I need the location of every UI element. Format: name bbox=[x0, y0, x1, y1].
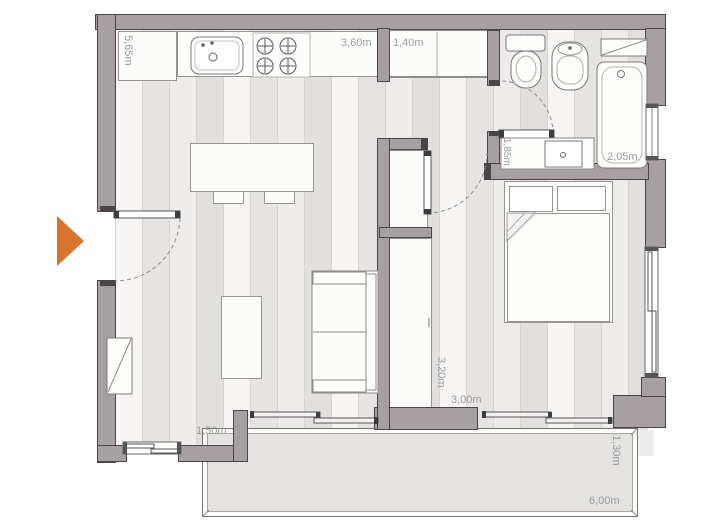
coffee-table bbox=[221, 296, 262, 379]
dim-kitchen-side: 5,65m bbox=[121, 35, 134, 81]
wall-kitchen-stub bbox=[377, 28, 390, 82]
dim-kitchen-counter: 3,60m bbox=[341, 37, 372, 50]
bedroom-closet bbox=[389, 150, 428, 228]
dim-bathtub: 2,05m bbox=[607, 151, 638, 164]
wall-closet-stub bbox=[379, 227, 432, 238]
dim-bedroom-width: 3,00m bbox=[451, 394, 482, 407]
kitchen-island bbox=[190, 143, 314, 192]
bed-blanket bbox=[507, 213, 610, 322]
wall-cap bbox=[489, 131, 500, 136]
balcony bbox=[202, 428, 638, 517]
wall-bottom-right-upper bbox=[641, 377, 666, 397]
dim-bath-vanity: 1,85m bbox=[500, 138, 513, 172]
wall-bath-left-upper bbox=[487, 30, 500, 86]
entrance-arrow-icon bbox=[57, 216, 84, 266]
wall-cap bbox=[100, 206, 115, 212]
pillow bbox=[509, 186, 553, 212]
wall-cap bbox=[489, 80, 500, 86]
wall-left-upper bbox=[97, 14, 116, 212]
wardrobe bbox=[389, 238, 432, 415]
dim-entry-closet: 1,40m bbox=[393, 37, 424, 50]
wall-right-top bbox=[645, 28, 666, 106]
dim-balcony-width: 6,00m bbox=[589, 495, 620, 508]
wall-cap bbox=[421, 138, 428, 150]
wall-bottom-right-block bbox=[613, 395, 666, 428]
wall-cap bbox=[484, 163, 491, 180]
wall-left-lower bbox=[97, 280, 116, 463]
wall-bath-left-lower bbox=[487, 131, 500, 167]
wall-bottom-left bbox=[97, 445, 127, 462]
dim-balcony-depth: 1,30m bbox=[609, 435, 622, 471]
wall-cap bbox=[100, 280, 115, 286]
floor-plan: 5,65m 3,60m 1,40m 1,85m 2,05m 3,20m 3,00… bbox=[0, 0, 720, 532]
wall-step-pier bbox=[233, 410, 248, 462]
dim-living-window: 1,50m bbox=[196, 425, 227, 438]
pillow bbox=[557, 186, 606, 211]
dim-bedroom-depth: 3,20m bbox=[434, 357, 447, 397]
balcony-floor bbox=[207, 433, 633, 512]
balcony-shadow bbox=[638, 430, 654, 456]
wall-living-bedroom bbox=[377, 138, 390, 430]
